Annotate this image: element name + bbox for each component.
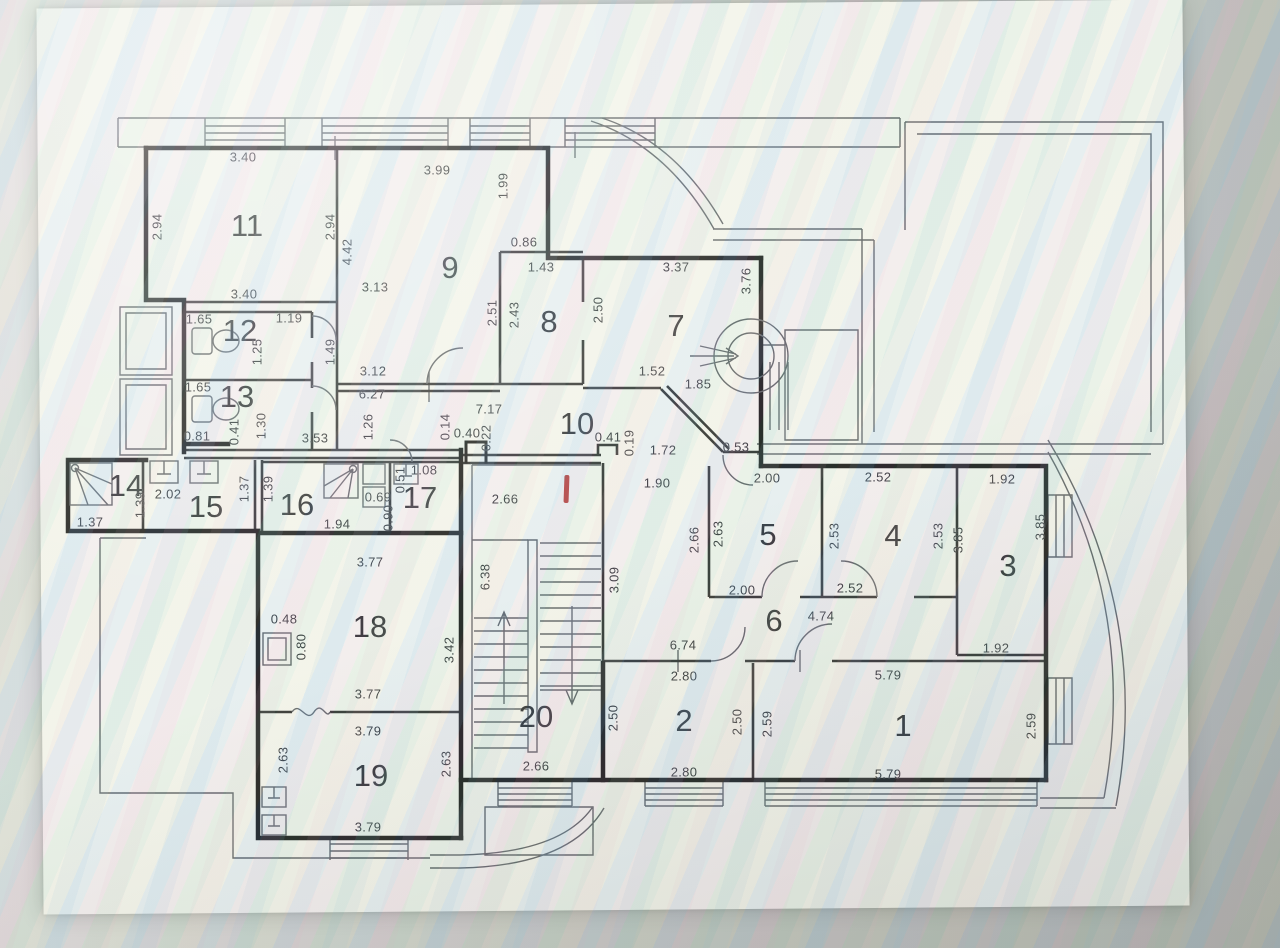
fixtures bbox=[70, 316, 877, 835]
shower-icon bbox=[70, 463, 112, 505]
sink-icon bbox=[150, 461, 178, 483]
cabinet-icon bbox=[363, 464, 385, 507]
niche-icon bbox=[263, 633, 291, 665]
sink-icon bbox=[394, 464, 418, 484]
radiator-icon bbox=[262, 787, 286, 807]
shower-icon bbox=[324, 464, 358, 498]
toilet-icon bbox=[192, 396, 239, 422]
staircase-icon bbox=[472, 465, 601, 780]
door-arcs bbox=[292, 316, 877, 715]
floorplan-photo: 11987121310141516171820195436213.403.991… bbox=[0, 0, 1280, 948]
floorplan-drawing bbox=[0, 0, 1280, 948]
toilet-icon bbox=[192, 328, 239, 354]
vent-shaft-icon bbox=[690, 319, 788, 393]
sink-icon bbox=[190, 461, 218, 483]
radiator-icon bbox=[262, 815, 286, 835]
